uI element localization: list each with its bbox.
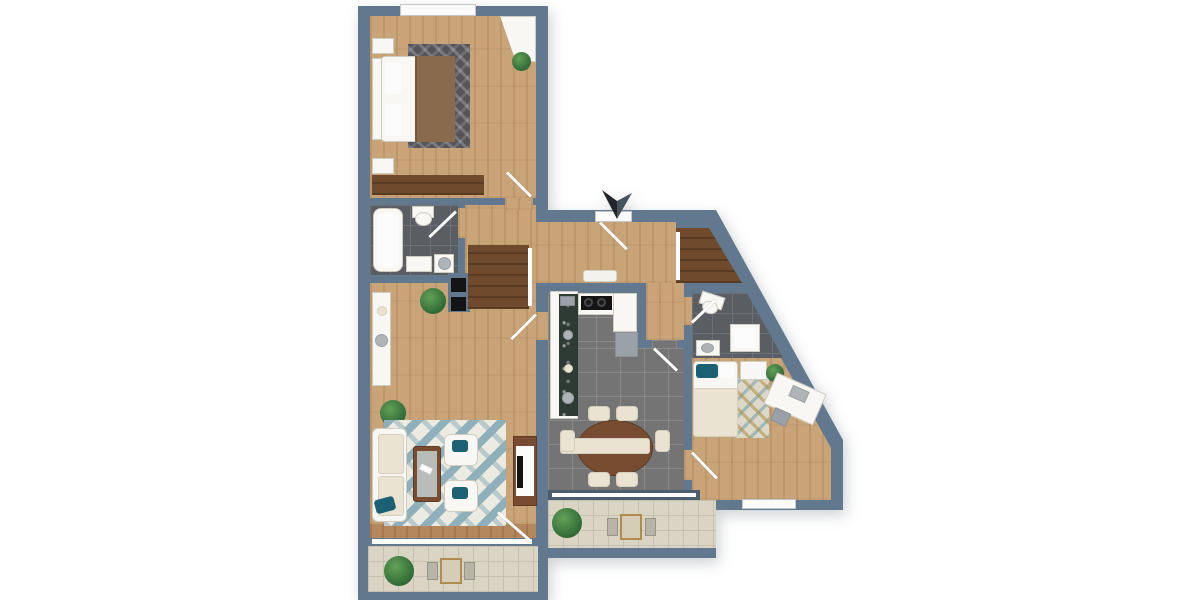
kitchen-sink <box>560 296 575 306</box>
balcony-2-table <box>620 514 642 540</box>
living-balcony-slider <box>372 539 532 544</box>
corridor-floor <box>646 283 684 340</box>
balcony-1-plant <box>384 556 414 586</box>
sofa-cushion-a <box>378 434 404 474</box>
countertop-plate <box>562 392 574 404</box>
balcony-2-chair-right <box>645 518 656 536</box>
fridge <box>613 293 637 332</box>
toilet-1-bowl <box>415 212 432 226</box>
page-background <box>0 0 1200 600</box>
bedroom-1-wardrobe <box>372 175 484 195</box>
bed-2-teal-pillow <box>696 364 718 378</box>
living-kitchen-door-gap <box>536 312 548 340</box>
armchair-2-pillow <box>452 487 468 499</box>
balcony-2-plant <box>552 508 582 538</box>
bedroom-2-window <box>742 499 796 509</box>
floor-plan <box>0 0 1200 600</box>
bed-1-pillow-right <box>385 104 401 136</box>
bed-2-white-pillow <box>720 364 734 378</box>
armchair-1-pillow <box>452 440 468 452</box>
balcony-1-table <box>440 558 462 584</box>
bed-2-duvet <box>693 388 738 437</box>
shower-tray <box>734 328 756 348</box>
bathtub-basin <box>377 213 399 267</box>
console-decor-bowl <box>377 306 387 316</box>
dining-balcony-slider <box>552 493 696 497</box>
nightstand-2 <box>740 361 767 380</box>
burner-2 <box>597 298 606 307</box>
bathroom-1-sink <box>406 256 432 272</box>
hall-wardrobe-door <box>528 248 532 306</box>
coffee-table-glass <box>417 451 437 497</box>
dining-chair-5 <box>560 430 575 452</box>
dining-chair-4 <box>616 472 638 487</box>
sink-2-basin <box>701 343 714 353</box>
kitchen-lower-cabinet <box>615 332 638 357</box>
countertop-bowl-a <box>563 330 573 340</box>
nightstand-1b <box>372 158 394 174</box>
dining-chair-6 <box>655 430 670 452</box>
north-arrow-marker <box>601 190 633 220</box>
shelf-niche-b <box>451 297 466 311</box>
washer-drum <box>438 257 451 270</box>
bathroom-1-door-gap <box>458 208 465 238</box>
bed-1-blanket <box>415 56 455 142</box>
hall-wardrobe <box>468 245 529 309</box>
bedroom-1-plant <box>512 52 531 71</box>
living-plant-1 <box>420 288 446 314</box>
dining-chair-3 <box>588 472 610 487</box>
dining-door-gap <box>652 340 678 348</box>
balcony-2-chair-left <box>607 518 618 536</box>
dining-chair-2 <box>616 406 638 421</box>
kitchen-hatch <box>583 270 617 282</box>
balcony-1-chair-right <box>464 562 475 580</box>
hall-passage-floor <box>536 222 548 283</box>
closet-sliding-door <box>676 232 680 280</box>
balcony-1-chair-left <box>427 562 438 580</box>
shelf-niche-a <box>451 278 466 292</box>
console-decor-plate <box>375 334 388 347</box>
tv-screen <box>517 456 523 488</box>
burner-1 <box>584 298 593 307</box>
bedroom-2-door-gap <box>684 450 692 480</box>
bed-1-pillow-left <box>385 62 401 94</box>
nightstand-1a <box>372 38 394 54</box>
bedroom-1-window <box>400 4 476 16</box>
bedroom-1-door-gap <box>505 198 533 210</box>
countertop-bowl-b <box>564 364 573 373</box>
dining-chair-1 <box>588 406 610 421</box>
